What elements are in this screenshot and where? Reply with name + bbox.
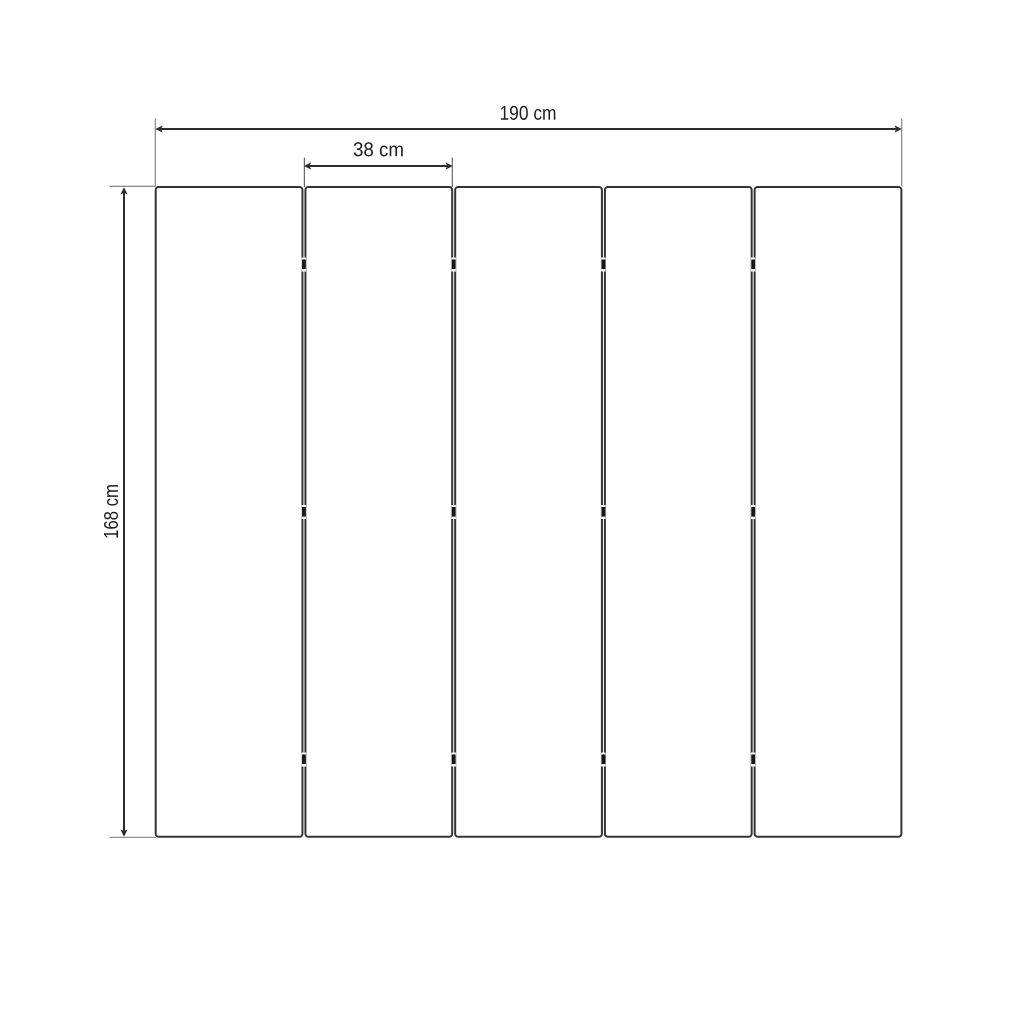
svg-text:168 cm: 168 cm bbox=[101, 484, 123, 539]
svg-text:190 cm: 190 cm bbox=[499, 103, 556, 125]
svg-text:38 cm: 38 cm bbox=[353, 139, 404, 161]
